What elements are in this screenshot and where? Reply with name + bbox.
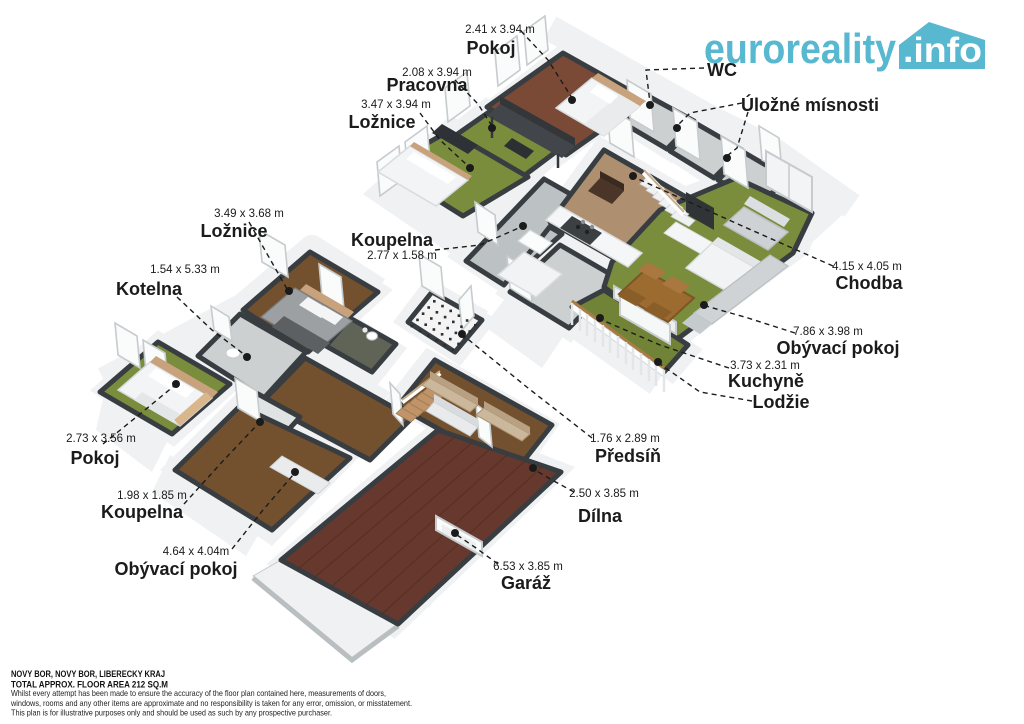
svg-text:2.77 x 1.58 m: 2.77 x 1.58 m — [367, 250, 437, 262]
svg-text:Obývací pokoj: Obývací pokoj — [776, 338, 899, 358]
svg-text:Pokoj: Pokoj — [466, 38, 515, 58]
svg-text:euroreality: euroreality — [704, 25, 897, 72]
svg-text:windows, rooms and any other i: windows, rooms and any other items are a… — [10, 699, 412, 708]
svg-text:1.54 x 5.33 m: 1.54 x 5.33 m — [150, 264, 220, 276]
svg-text:Předsíň: Předsíň — [595, 446, 661, 466]
svg-text:Pracovna: Pracovna — [386, 75, 468, 95]
svg-text:Ložnice: Ložnice — [348, 112, 415, 132]
svg-text:2.41 x 3.94 m: 2.41 x 3.94 m — [465, 24, 535, 36]
svg-text:This plan is for illustrative: This plan is for illustrative purposes o… — [11, 708, 332, 717]
svg-text:2.50 x 3.85 m: 2.50 x 3.85 m — [569, 488, 639, 500]
svg-text:.info: .info — [903, 31, 982, 70]
svg-text:1.98 x 1.85 m: 1.98 x 1.85 m — [117, 490, 187, 502]
svg-text:1.76 x 2.89 m: 1.76 x 2.89 m — [590, 433, 660, 445]
svg-text:Garáž: Garáž — [501, 573, 551, 593]
svg-text:Obývací pokoj: Obývací pokoj — [114, 559, 237, 579]
svg-text:Kotelna: Kotelna — [116, 279, 183, 299]
svg-text:Ložnice: Ložnice — [200, 221, 267, 241]
svg-text:Úložné mísnosti: Úložné mísnosti — [741, 94, 879, 115]
svg-text:NOVY BOR, NOVY BOR, LIBERECKY: NOVY BOR, NOVY BOR, LIBERECKY KRAJ — [11, 669, 165, 679]
svg-text:Pokoj: Pokoj — [70, 448, 119, 468]
svg-text:Chodba: Chodba — [836, 273, 904, 293]
svg-text:TOTAL APPROX. FLOOR AREA 212 S: TOTAL APPROX. FLOOR AREA 212 SQ.M — [11, 680, 168, 690]
svg-text:Koupelna: Koupelna — [101, 502, 184, 522]
svg-text:6.53 x 3.85 m: 6.53 x 3.85 m — [493, 561, 563, 573]
svg-text:7.86 x 3.98 m: 7.86 x 3.98 m — [793, 326, 863, 338]
svg-text:Kuchyně: Kuchyně — [728, 371, 804, 391]
svg-text:Koupelna: Koupelna — [351, 230, 434, 250]
svg-text:3.49 x 3.68 m: 3.49 x 3.68 m — [214, 208, 284, 220]
svg-text:4.64 x 4.04m: 4.64 x 4.04m — [163, 546, 229, 558]
svg-text:Lodžie: Lodžie — [753, 392, 810, 412]
svg-text:2.73 x 3.56 m: 2.73 x 3.56 m — [66, 433, 136, 445]
svg-text:Dílna: Dílna — [578, 506, 623, 526]
svg-text:3.47 x 3.94 m: 3.47 x 3.94 m — [361, 99, 431, 111]
svg-text:4.15 x 4.05 m: 4.15 x 4.05 m — [832, 261, 902, 273]
svg-text:Whilst every attempt has been: Whilst every attempt has been made to en… — [11, 689, 386, 698]
